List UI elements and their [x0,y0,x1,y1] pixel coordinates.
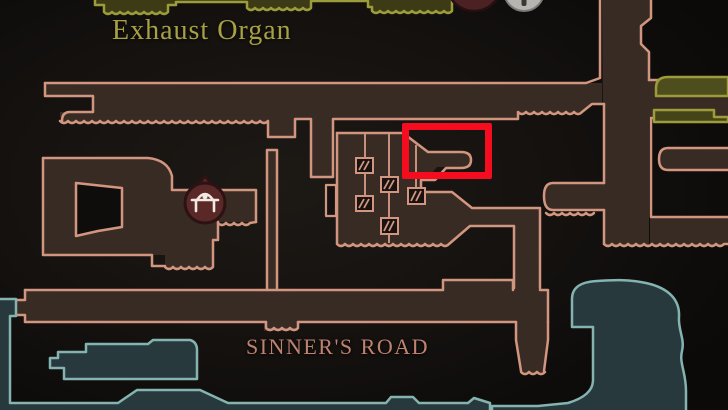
save-bench-icon [185,176,225,223]
red-circle-icon-partial [448,0,500,11]
olive-room-top [95,0,452,14]
olive-room-right-upper [656,77,728,96]
silver-circle-icon-partial [504,0,544,11]
bench-room-hole [76,183,122,236]
shaft-end-box [326,185,336,216]
map-canvas [0,0,728,410]
elevator-icon [408,188,425,204]
game-map[interactable]: Exhaust Organ SINNER'S ROAD [0,0,728,410]
map-highlight-marker [402,123,492,179]
elevator-icon [381,218,398,234]
elevator-icon [356,196,373,211]
elevator-icon [381,177,398,192]
elevator-icon [356,158,373,173]
